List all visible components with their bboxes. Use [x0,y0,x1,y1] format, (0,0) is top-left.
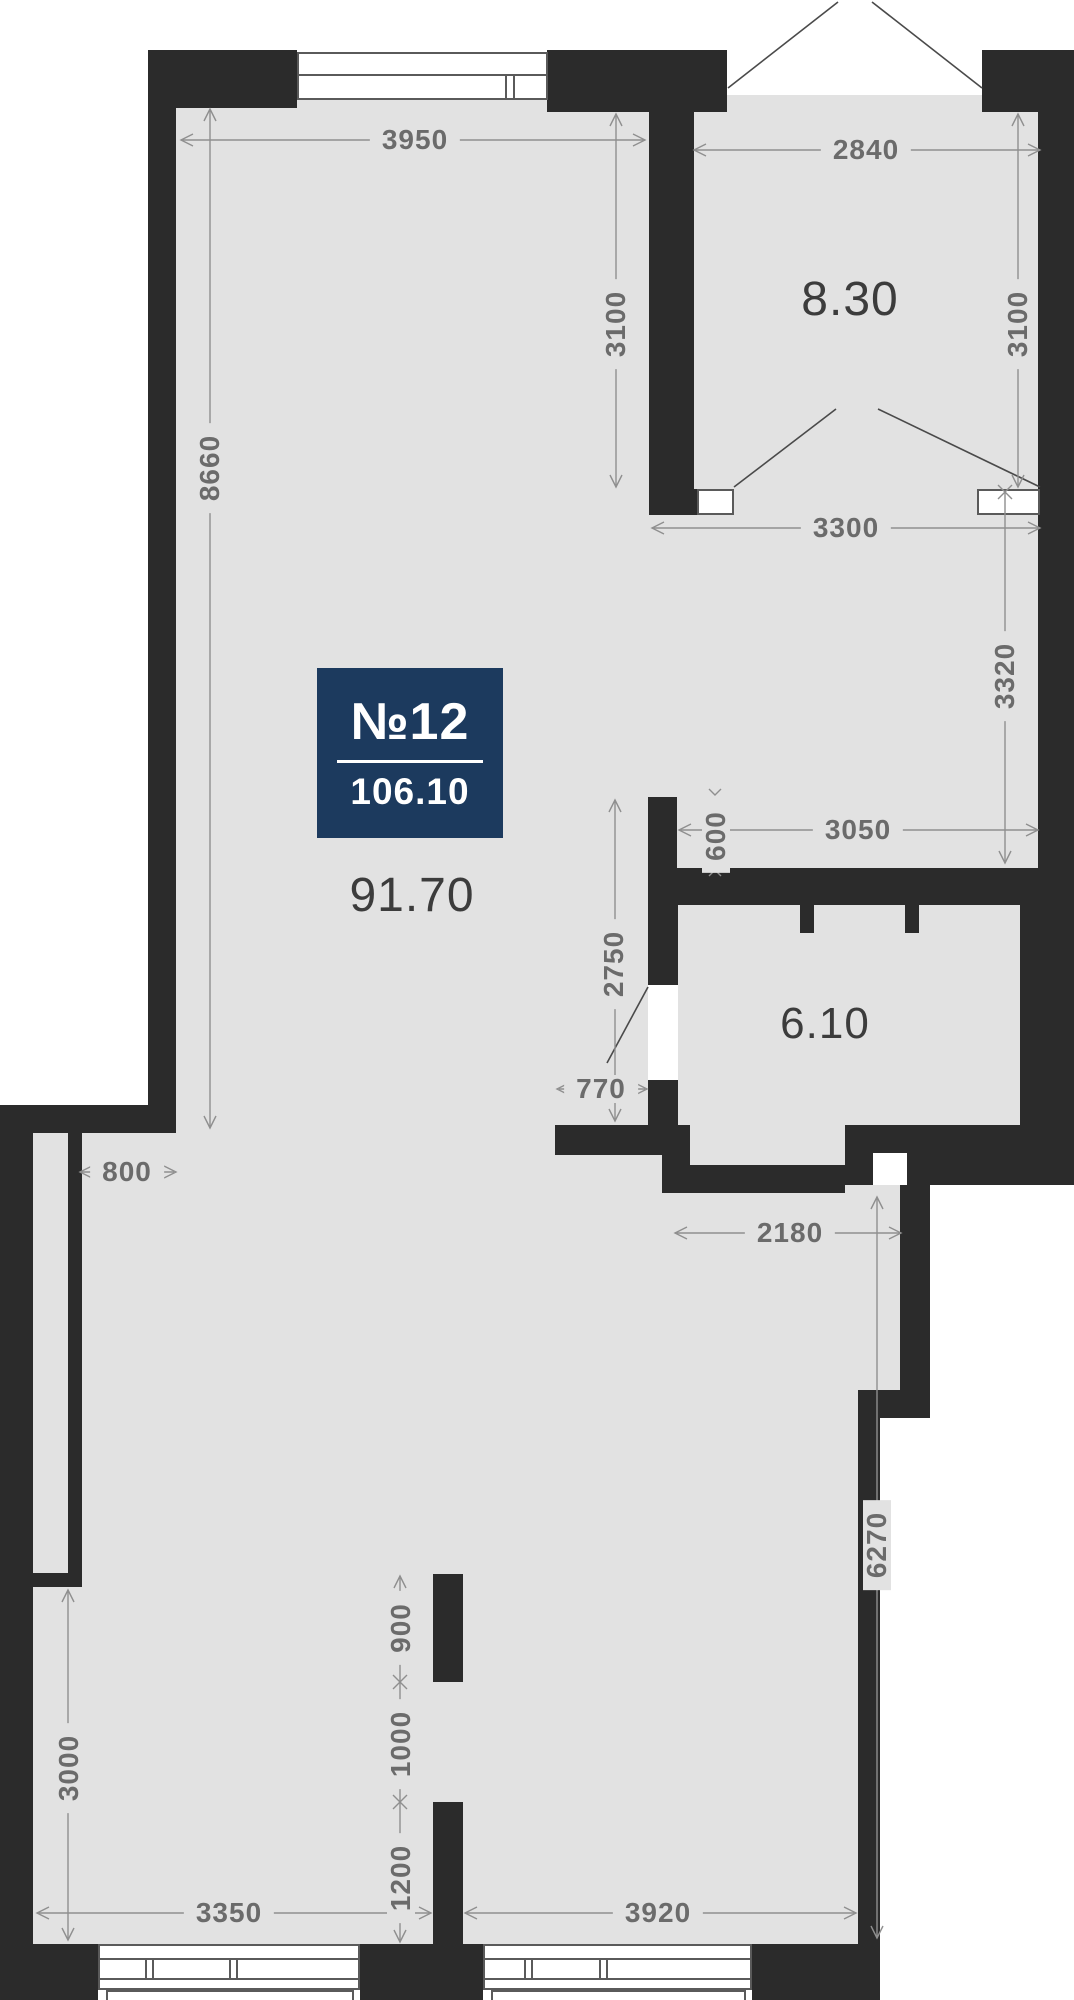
dim-3100-left: 3100 [602,279,630,369]
dim-1000: 1000 [387,1699,415,1789]
dim-2180: 2180 [745,1219,835,1247]
dim-3000: 3000 [55,1723,83,1813]
dim-3050: 3050 [813,816,903,844]
dim-3320: 3320 [991,631,1019,721]
dim-3300: 3300 [801,514,891,542]
dim-6270: 6270 [863,1500,891,1590]
dim-800: 800 [90,1158,164,1186]
dim-3950: 3950 [370,126,460,154]
dim-900: 900 [387,1591,415,1665]
unit-badge: №12 106.10 [317,668,503,838]
dim-8660: 8660 [196,423,224,513]
unit-total-area: 106.10 [350,773,469,810]
badge-divider [337,760,483,763]
area-main-room: 91.70 [349,872,474,920]
dim-600: 600 [702,799,730,873]
dim-8660-line [204,109,216,1128]
dim-3100-right: 3100 [1004,279,1032,369]
area-bathroom: 6.10 [780,1002,870,1046]
dim-2750: 2750 [600,919,628,1009]
unit-number: №12 [351,696,470,748]
dimension-linework [0,0,1074,2000]
dim-1200: 1200 [387,1833,415,1923]
floor-plan: 3950 2840 3100 3100 3300 8660 3320 3050 … [0,0,1074,2000]
dim-3920: 3920 [613,1899,703,1927]
dim-2840: 2840 [821,136,911,164]
dim-770: 770 [564,1075,638,1103]
area-room-830: 8.30 [801,276,898,324]
dim-3350: 3350 [184,1899,274,1927]
entrance-door-swing [728,2,982,88]
double-door-830-swing [734,409,1040,487]
